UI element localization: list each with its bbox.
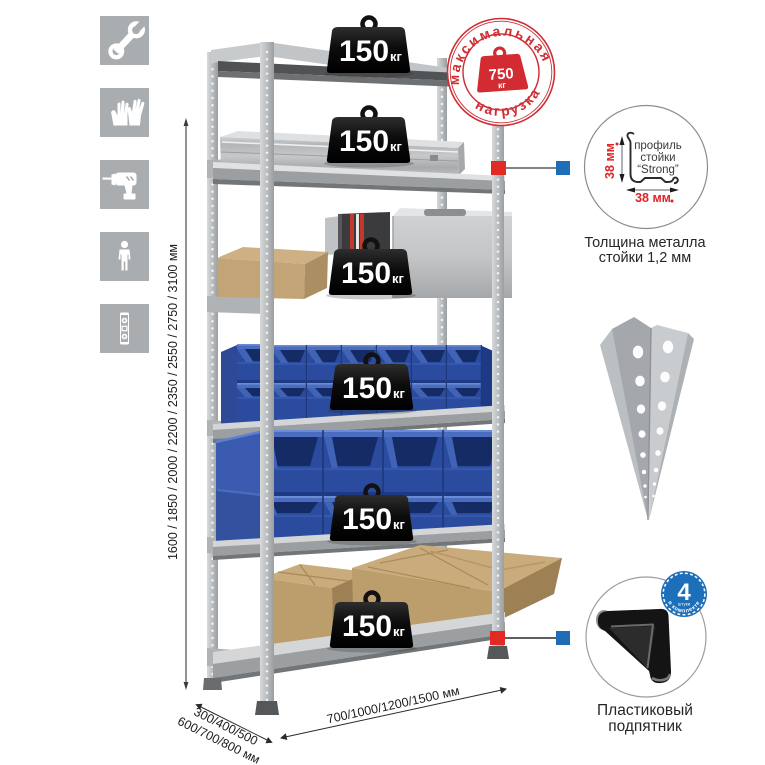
svg-text:кг: кг [498,80,507,91]
svg-text:“Strong”: “Strong” [637,164,679,176]
svg-text:стойки 1,2 мм: стойки 1,2 мм [599,250,692,266]
svg-text:1600 / 1850 / 2000 / 2200 / 23: 1600 / 1850 / 2000 / 2200 / 2350 / 2550 … [166,244,180,560]
svg-text:38 мм: 38 мм [603,143,617,179]
svg-text:700/1000/1200/1500 мм: 700/1000/1200/1500 мм [326,684,461,727]
svg-text:подпятник: подпятник [608,718,682,735]
svg-text:Толщина металла: Толщина металла [584,235,706,251]
svg-text:штуки: штуки [678,602,691,607]
svg-text:Пластиковый: Пластиковый [597,702,693,719]
svg-text:38 мм: 38 мм [635,191,671,205]
svg-text:профиль: профиль [634,140,682,152]
svg-text:стойки: стойки [640,152,675,164]
